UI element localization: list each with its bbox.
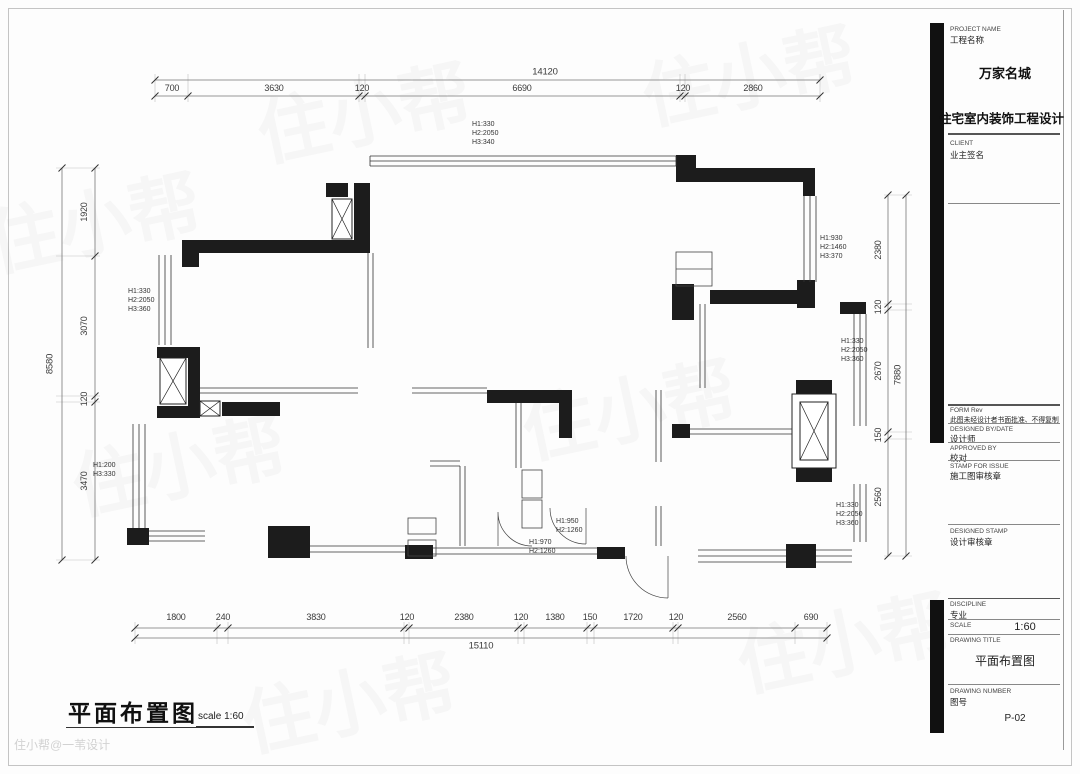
walls — [127, 155, 866, 568]
annotation-height-note: H1:950 H2:1260 — [556, 517, 582, 535]
dim-top-seg: 700 — [165, 83, 179, 93]
form-label: FORM Rev — [950, 407, 983, 414]
dim-bottom-seg: 240 — [216, 612, 230, 622]
dim-bottom-seg: 120 — [669, 612, 683, 622]
dim-bottom-seg: 120 — [514, 612, 528, 622]
dim-left-seg: 3070 — [79, 316, 89, 335]
dim-right-seg: 150 — [873, 428, 883, 442]
shaft-cross-lines — [160, 199, 828, 460]
designed-by: 设计师 — [950, 433, 976, 445]
dim-left-seg: 120 — [79, 392, 89, 406]
client-label-en: CLIENT — [950, 140, 973, 147]
divider — [948, 634, 1060, 635]
dim-top-seg: 2860 — [743, 83, 762, 93]
dim-top-seg: 120 — [355, 83, 369, 93]
drawing-scale-note: scale 1:60 — [198, 711, 244, 722]
project-name: 万家名城 — [950, 63, 1060, 82]
dim-top-total: 14120 — [532, 67, 557, 78]
dim-right-total: 7880 — [893, 365, 904, 385]
windows — [133, 156, 866, 562]
annotation-height-note: H1:930 H2:1460 H3:370 — [820, 234, 846, 261]
dim-bottom-seg: 2380 — [454, 612, 473, 622]
drawing-title-label: DRAWING TITLE — [950, 637, 1001, 644]
dim-bottom-seg: 1800 — [166, 612, 185, 622]
project-name-label-en: PROJECT NAME — [950, 26, 1001, 33]
dim-bottom-seg: 150 — [583, 612, 597, 622]
scale-value: 1:60 — [995, 621, 1055, 633]
approved-by-label: APPROVED BY — [950, 445, 997, 452]
dim-right-seg: 2560 — [873, 487, 883, 506]
designed-stamp-label: DESIGNED STAMP — [950, 528, 1008, 535]
divider — [948, 598, 1060, 599]
dim-top-seg: 120 — [676, 83, 690, 93]
annotation-height-note: H1:200 H3:330 — [93, 461, 116, 479]
annotation-height-note: H1:330 H2:2050 H3:360 — [128, 287, 154, 314]
divider — [948, 203, 1060, 204]
dim-right-seg: 120 — [873, 300, 883, 314]
annotation-height-note: H1:330 H2:2050 H3:340 — [472, 120, 498, 147]
scale-label: SCALE — [950, 622, 971, 629]
scale-underline — [196, 726, 254, 728]
drawing-number-label: DRAWING NUMBER — [950, 688, 1011, 695]
dim-right-seg: 2670 — [873, 361, 883, 380]
corner-watermark: 住小帮@一苇设计 — [14, 736, 110, 753]
annotation-height-note: H1:330 H2:2050 H3:360 — [836, 501, 862, 528]
dim-left-seg: 3470 — [79, 471, 89, 490]
divider — [948, 442, 1060, 443]
divider — [948, 404, 1060, 406]
drawing-title-value: 平面布置图 — [950, 652, 1060, 669]
drawing-title: 平面布置图 — [68, 694, 198, 728]
dim-bottom-seg: 1720 — [623, 612, 642, 622]
stamp-for-issue: 施工图审核章 — [950, 470, 1001, 482]
divider — [948, 133, 1060, 135]
annotation-height-note: H1:970 H2:1260 — [529, 538, 555, 556]
project-type: 住宅室内装饰工程设计 — [939, 108, 1069, 127]
designed-stamp: 设计审核章 — [950, 536, 993, 548]
client-label-cn: 业主签名 — [950, 149, 984, 161]
dim-bottom-seg: 2560 — [727, 612, 746, 622]
title-block-bar — [930, 600, 944, 733]
dim-bottom-total: 15110 — [469, 641, 494, 652]
drawing-sheet: 住小帮 住小帮 住小帮 住小帮 住小帮 住小帮 住小帮 — [0, 0, 1080, 774]
title-underline — [66, 727, 196, 728]
shaft-boxes — [160, 199, 836, 468]
divider — [948, 619, 1060, 620]
stamp-for-issue-label: STAMP FOR ISSUE — [950, 463, 1009, 470]
divider — [948, 684, 1060, 685]
dim-left-total: 8580 — [45, 354, 56, 374]
annotation-height-note: H1:330 H2:2050 H3:360 — [841, 337, 867, 364]
project-name-label-cn: 工程名称 — [950, 34, 984, 46]
discipline-label: DISCIPLINE — [950, 601, 986, 608]
title-block-bar — [930, 23, 944, 443]
drawing-number: P-02 — [980, 713, 1050, 724]
door-swings — [498, 508, 668, 598]
floor-plan-drawing — [0, 0, 1080, 774]
dim-right-seg: 2380 — [873, 240, 883, 259]
dim-left-seg: 1920 — [79, 202, 89, 221]
dim-bottom-seg: 3830 — [306, 612, 325, 622]
divider — [948, 460, 1060, 461]
divider — [948, 423, 1060, 424]
dim-bottom-seg: 1380 — [545, 612, 564, 622]
divider — [948, 524, 1060, 525]
dim-top-seg: 3630 — [264, 83, 283, 93]
dim-top-seg: 6690 — [512, 83, 531, 93]
dim-bottom-seg: 120 — [400, 612, 414, 622]
dim-bottom-seg: 690 — [804, 612, 818, 622]
designed-by-label: DESIGNED BY/DATE — [950, 426, 1013, 433]
drawing-number-label-cn: 图号 — [950, 696, 967, 708]
partition-walls — [200, 253, 792, 554]
